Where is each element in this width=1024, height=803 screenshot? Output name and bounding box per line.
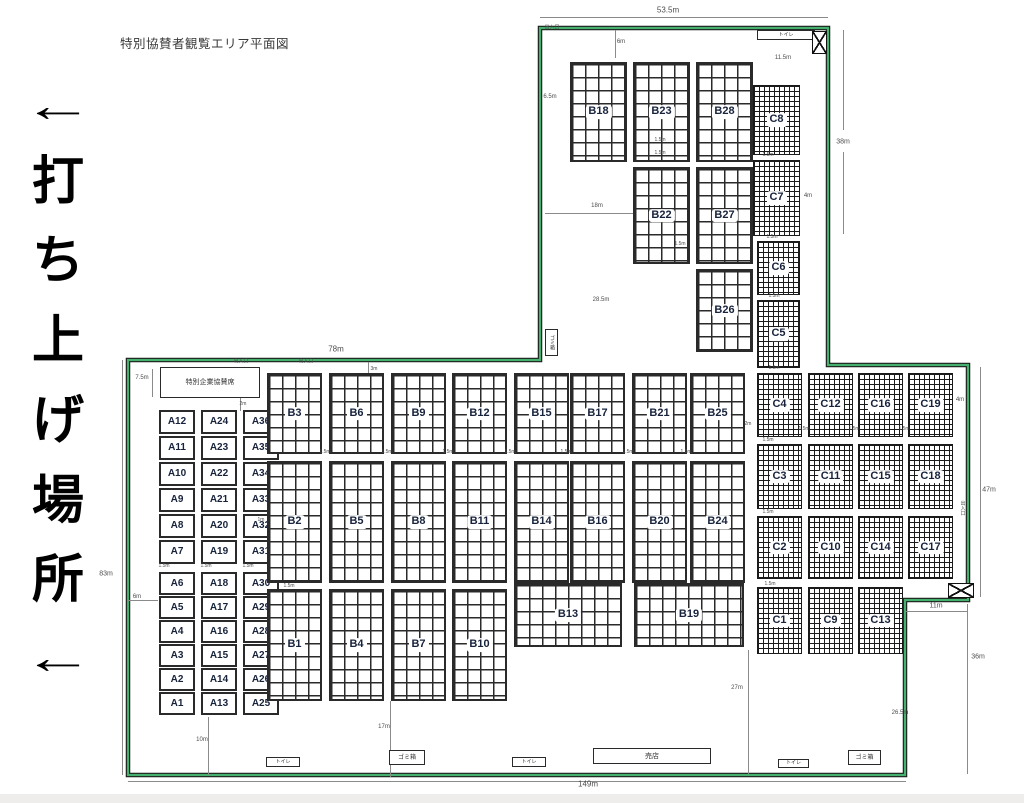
- block-B11: B11: [452, 461, 507, 583]
- dimension-line: [390, 701, 391, 777]
- dimension-label: 出入口: [298, 358, 313, 365]
- floor-plan-canvas: 特別協賛者観覧エリア平面図 ←打ち上げ場所← A12A11A10A9A8A7A6…: [0, 0, 1024, 803]
- block-B12: B12: [452, 373, 507, 454]
- block-label: B5: [346, 515, 366, 529]
- block-B16: B16: [570, 461, 625, 583]
- dimension-label: 1.5m: [768, 365, 779, 371]
- block-B3: B3: [267, 373, 322, 454]
- block-C18: C18: [908, 444, 953, 509]
- dimension-label: 36m: [971, 654, 985, 661]
- block-label: B4: [346, 638, 366, 652]
- block-C8: C8: [753, 85, 800, 155]
- block-A7: A7: [159, 540, 195, 564]
- block-label: B7: [408, 638, 428, 652]
- dimension-label: 3m: [371, 366, 378, 372]
- block-label: B2: [284, 515, 304, 529]
- block-C7: C7: [753, 160, 800, 236]
- dimension-label: 1.5m: [381, 449, 392, 455]
- block-label: C7: [766, 191, 786, 205]
- block-C12: C12: [808, 373, 853, 437]
- dimension-label: 1.5m: [764, 581, 775, 587]
- block-label: B22: [648, 209, 674, 223]
- dimension-label: 2m: [745, 421, 752, 427]
- dimension-label: 1.5m: [798, 426, 809, 432]
- block-C2: C2: [757, 516, 802, 579]
- block-label: C18: [917, 470, 943, 484]
- trash-box-box: ゴミ箱: [389, 750, 425, 765]
- dimension-label: 6m: [617, 39, 625, 45]
- block-B26: B26: [696, 269, 753, 352]
- block-label: A9: [170, 494, 185, 507]
- dimension-label: 1.5m: [848, 426, 859, 432]
- trash-box-box: ゴミ箱: [848, 750, 881, 765]
- block-A18: A18: [201, 572, 237, 595]
- block-label: A10: [167, 468, 187, 481]
- trash-box-box: ゴミ箱: [545, 329, 558, 356]
- block-B23: B23: [633, 62, 690, 162]
- block-label: B14: [528, 515, 554, 529]
- block-label: B3: [284, 407, 304, 421]
- dimension-label: 1m: [258, 517, 265, 523]
- block-B18: B18: [570, 62, 627, 162]
- block-label: A4: [170, 625, 185, 638]
- block-C9: C9: [808, 587, 853, 654]
- block-A12: A12: [159, 410, 195, 434]
- block-A6: A6: [159, 572, 195, 595]
- dimension-label: 26.5m: [892, 710, 909, 716]
- block-label: C14: [867, 541, 893, 555]
- block-C1: C1: [757, 587, 802, 654]
- dimension-label: 1.5m: [560, 449, 571, 455]
- block-label: C17: [917, 541, 943, 555]
- dimension-label: 1.5m: [283, 583, 294, 589]
- block-label: A11: [167, 442, 187, 455]
- block-B27: B27: [696, 167, 753, 264]
- block-label: B1: [284, 638, 304, 652]
- block-label: A20: [209, 520, 229, 533]
- block-A19: A19: [201, 540, 237, 564]
- dimension-line: [128, 600, 158, 601]
- block-C10: C10: [808, 516, 853, 579]
- block-B20: B20: [632, 461, 687, 583]
- dimension-label: 78m: [328, 345, 344, 354]
- block-label: B18: [585, 105, 611, 119]
- dimension-label: 53.5m: [657, 6, 679, 15]
- block-B17: B17: [570, 373, 625, 454]
- block-B10: B10: [452, 589, 507, 701]
- block-B19: B19: [634, 583, 744, 647]
- block-A9: A9: [159, 488, 195, 512]
- dimension-line: [967, 604, 968, 774]
- dimension-label: 7.5m: [135, 375, 148, 381]
- block-label: C13: [867, 614, 893, 628]
- block-label: A15: [209, 649, 229, 662]
- toilet-box: トイレ: [512, 757, 546, 767]
- block-label: C9: [820, 614, 840, 628]
- block-A3: A3: [159, 644, 195, 667]
- dimension-line: [843, 152, 844, 234]
- dimension-label: 11.5m: [775, 55, 791, 61]
- block-A5: A5: [159, 596, 195, 619]
- dimension-label: 4m: [956, 397, 964, 403]
- dimension-line: [905, 611, 968, 612]
- block-B6: B6: [329, 373, 384, 454]
- dimension-label: 1.5m: [242, 563, 253, 569]
- dimension-label: 4m: [804, 193, 812, 199]
- block-label: A5: [170, 601, 185, 614]
- block-A10: A10: [159, 462, 195, 486]
- block-label: C16: [867, 398, 893, 412]
- block-label: B19: [676, 608, 702, 622]
- block-label: B28: [711, 105, 737, 119]
- block-label: A22: [209, 468, 229, 481]
- dimension-label: 1.5m: [762, 437, 773, 443]
- dimension-label: 6.5m: [543, 94, 556, 100]
- block-B14: B14: [514, 461, 569, 583]
- block-C14: C14: [858, 516, 903, 579]
- block-B13: B13: [514, 583, 622, 647]
- block-B4: B4: [329, 589, 384, 701]
- block-B2: B2: [267, 461, 322, 583]
- dimension-label: 1.5m: [622, 449, 633, 455]
- block-C4: C4: [757, 373, 802, 437]
- block-C13: C13: [858, 587, 903, 654]
- dimension-label: 1.5m: [768, 293, 779, 299]
- block-label: B10: [466, 638, 492, 652]
- toilet-box: トイレ: [266, 757, 300, 767]
- block-label: A23: [209, 442, 229, 455]
- block-label: A1: [170, 697, 185, 710]
- block-C6: C6: [757, 241, 800, 295]
- block-label: B9: [408, 407, 428, 421]
- gate-marker-icon: [948, 583, 974, 598]
- dimension-line: [843, 30, 844, 130]
- block-label: C15: [867, 470, 893, 484]
- block-label: B12: [466, 407, 492, 421]
- block-label: B26: [711, 304, 737, 318]
- dimension-label: 1.5m: [674, 241, 685, 247]
- block-label: A21: [209, 494, 229, 507]
- dimension-label: 1.5m: [762, 152, 773, 158]
- block-label: C4: [769, 398, 789, 412]
- block-B21: B21: [632, 373, 687, 454]
- block-label: C6: [768, 261, 788, 275]
- dimension-line: [980, 367, 981, 597]
- dimension-label: 18m: [591, 203, 603, 209]
- dimension-label: 出入口: [544, 24, 559, 31]
- block-A16: A16: [201, 620, 237, 643]
- block-B7: B7: [391, 589, 446, 701]
- block-label: A13: [209, 697, 229, 710]
- block-C17: C17: [908, 516, 953, 579]
- block-label: B16: [584, 515, 610, 529]
- block-A13: A13: [201, 692, 237, 715]
- dimension-label: 1.5m: [680, 449, 691, 455]
- block-label: C19: [917, 398, 943, 412]
- block-label: C12: [817, 398, 843, 412]
- block-label: A24: [209, 416, 229, 429]
- block-A8: A8: [159, 514, 195, 538]
- block-B22: B22: [633, 167, 690, 264]
- block-label: A18: [209, 577, 229, 590]
- block-label: A19: [209, 546, 229, 559]
- dimension-line: [748, 650, 749, 774]
- block-label: C5: [768, 327, 788, 341]
- block-label: C10: [817, 541, 843, 555]
- shop-box: 売店: [593, 748, 711, 764]
- dimension-label: 1.5m: [654, 137, 665, 143]
- gate-marker-icon: [812, 31, 827, 54]
- block-label: B27: [711, 209, 737, 223]
- block-label: C11: [818, 470, 844, 484]
- dimension-label: 11m: [929, 603, 942, 610]
- block-B5: B5: [329, 461, 384, 583]
- dimension-label: 17m: [378, 724, 390, 730]
- block-B24: B24: [690, 461, 745, 583]
- block-C19: C19: [908, 373, 953, 437]
- block-A20: A20: [201, 514, 237, 538]
- block-label: A8: [170, 520, 185, 533]
- block-label: B20: [646, 515, 672, 529]
- dimension-label: 1.5m: [319, 449, 330, 455]
- block-C16: C16: [858, 373, 903, 437]
- dimension-line: [540, 17, 828, 18]
- block-label: A14: [209, 673, 229, 686]
- block-label: A7: [170, 546, 185, 559]
- dimension-label: 1.5m: [442, 449, 453, 455]
- corporate-sponsor-seats-box: 特別企業協賛席: [160, 367, 260, 398]
- dimension-label: 27m: [731, 685, 743, 691]
- block-label: B15: [528, 407, 554, 421]
- dimension-label: 38m: [836, 139, 850, 146]
- dimension-label: 6m: [133, 594, 141, 600]
- block-A4: A4: [159, 620, 195, 643]
- block-A2: A2: [159, 668, 195, 691]
- block-label: B23: [648, 105, 674, 119]
- block-label: A17: [209, 601, 229, 614]
- block-label: A6: [170, 577, 185, 590]
- block-A11: A11: [159, 436, 195, 460]
- block-label: B13: [555, 608, 581, 622]
- dimension-line: [128, 781, 906, 782]
- dimension-label: 1.5m: [654, 150, 665, 156]
- dimension-label: 1.5m: [766, 234, 777, 240]
- block-B1: B1: [267, 589, 322, 701]
- dimension-label: 出入口: [233, 358, 248, 365]
- block-B25: B25: [690, 373, 745, 454]
- block-label: B21: [646, 407, 672, 421]
- dimension-label: 149m: [578, 780, 598, 789]
- toilet-box: トイレ: [757, 30, 815, 40]
- block-label: A3: [170, 649, 185, 662]
- dimension-label: 出入口: [960, 501, 967, 516]
- dimension-label: 1.5m: [898, 426, 909, 432]
- dimension-label: 2m: [240, 401, 247, 407]
- block-A15: A15: [201, 644, 237, 667]
- dimension-label: 1.5m: [762, 509, 773, 515]
- block-label: C3: [769, 470, 789, 484]
- dimension-label: 1.5m: [504, 449, 515, 455]
- dimension-label: 1.5m: [200, 563, 211, 569]
- block-C11: C11: [808, 444, 853, 509]
- block-C15: C15: [858, 444, 903, 509]
- page-edge-strip: [0, 794, 1024, 803]
- block-B28: B28: [696, 62, 753, 162]
- block-A22: A22: [201, 462, 237, 486]
- dimension-label: 83m: [99, 571, 113, 578]
- block-A21: A21: [201, 488, 237, 512]
- block-label: B24: [704, 515, 730, 529]
- block-C3: C3: [757, 444, 802, 509]
- block-B15: B15: [514, 373, 569, 454]
- dimension-label: 1.5m: [158, 563, 169, 569]
- dimension-line: [208, 717, 209, 775]
- block-label: C8: [766, 113, 786, 127]
- dimension-line: [545, 213, 633, 214]
- block-A14: A14: [201, 668, 237, 691]
- toilet-box: トイレ: [778, 759, 809, 768]
- block-label: A2: [170, 673, 185, 686]
- block-label: B25: [704, 407, 730, 421]
- block-label: C1: [769, 614, 789, 628]
- block-label: B17: [584, 407, 610, 421]
- block-label: B8: [408, 515, 428, 529]
- dimension-line: [152, 369, 153, 397]
- dimension-label: 47m: [982, 487, 996, 494]
- block-label: A12: [167, 416, 187, 429]
- block-label: B11: [467, 515, 493, 529]
- dimension-line: [122, 360, 123, 775]
- block-B8: B8: [391, 461, 446, 583]
- block-C5: C5: [757, 300, 800, 368]
- block-A17: A17: [201, 596, 237, 619]
- block-label: A16: [209, 625, 229, 638]
- block-A23: A23: [201, 436, 237, 460]
- block-A1: A1: [159, 692, 195, 715]
- dimension-label: 28.5m: [593, 297, 610, 303]
- block-label: C2: [769, 541, 789, 555]
- dimension-label: 10m: [196, 737, 208, 743]
- block-B9: B9: [391, 373, 446, 454]
- block-A24: A24: [201, 410, 237, 434]
- block-label: B6: [346, 407, 366, 421]
